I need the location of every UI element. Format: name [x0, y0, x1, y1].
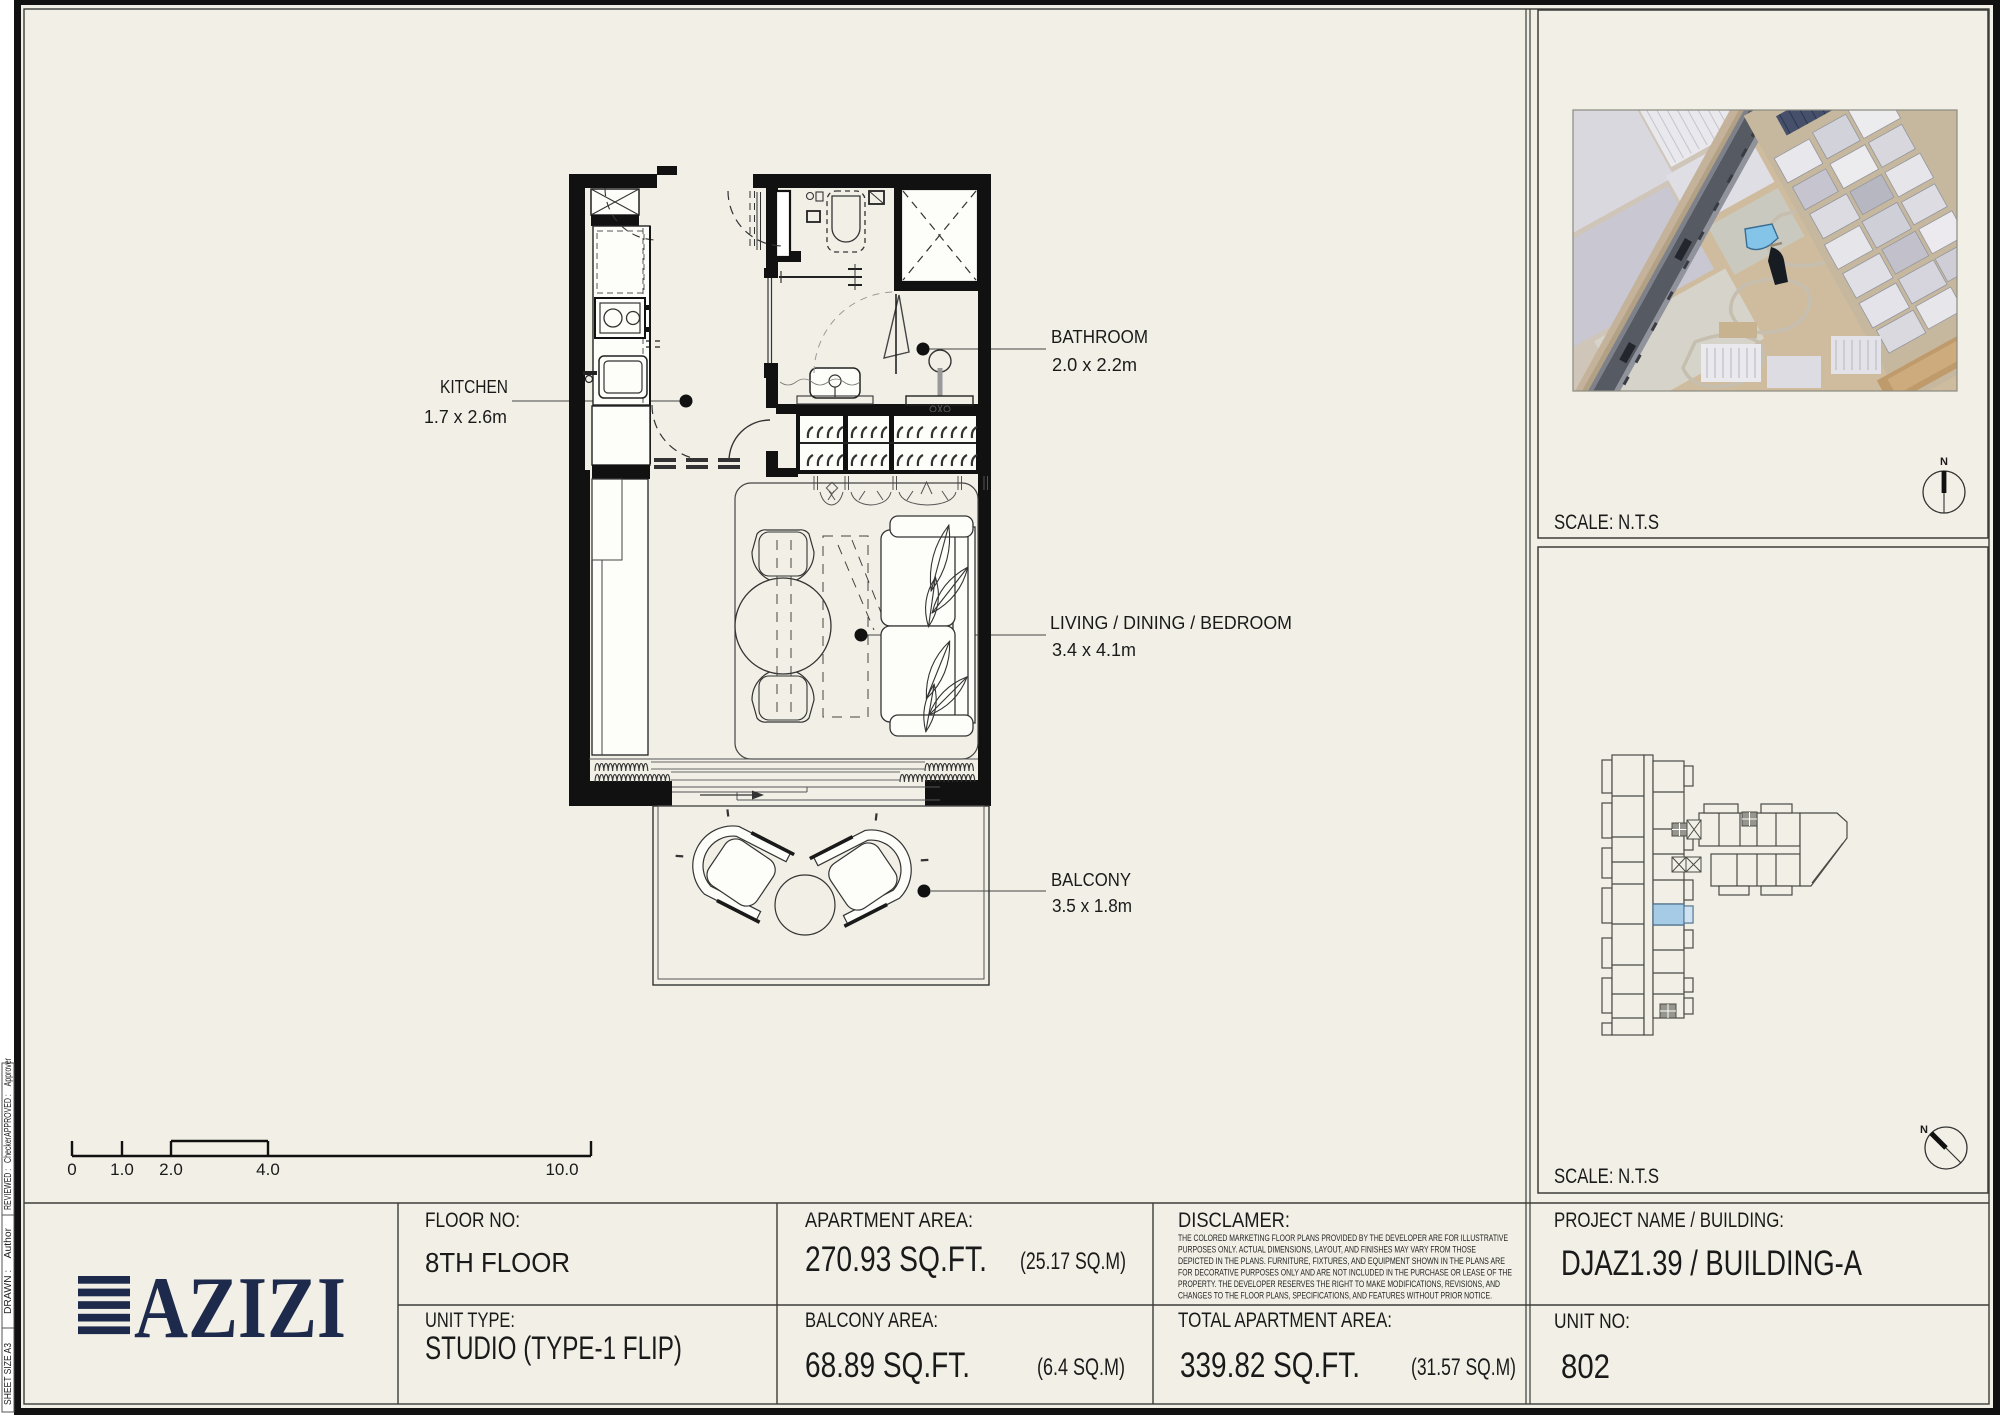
svg-text:2.0 x 2.2m: 2.0 x 2.2m — [1052, 354, 1137, 375]
svg-text:1.7 x 2.6m: 1.7 x 2.6m — [424, 406, 507, 427]
svg-text:BATHROOM: BATHROOM — [1051, 326, 1148, 347]
svg-text:SCALE: N.T.S: SCALE: N.T.S — [1554, 511, 1659, 534]
svg-text:N: N — [1920, 1124, 1928, 1136]
svg-text:AZIZI: AZIZI — [134, 1260, 346, 1357]
svg-text:BALCONY: BALCONY — [1051, 869, 1131, 890]
svg-text:DRAWN : Author: DRAWN : Author — [2, 1228, 14, 1314]
svg-text:STUDIO (TYPE-1 FLIP): STUDIO (TYPE-1 FLIP) — [425, 1330, 682, 1366]
svg-text:REVIEWED : CheckerAPPROVED :: REVIEWED : CheckerAPPROVED : Approver — [3, 1058, 14, 1210]
svg-text:CHANGES TO THE FLOOR PLANS, SP: CHANGES TO THE FLOOR PLANS, SPECIFICATIO… — [1178, 1291, 1492, 1302]
svg-text:PURPOSES ONLY. ACTUAL DIMENSIO: PURPOSES ONLY. ACTUAL DIMENSIONS, LAYOUT… — [1178, 1245, 1476, 1256]
svg-text:3.5 x 1.8m: 3.5 x 1.8m — [1052, 895, 1132, 916]
svg-text:2.0: 2.0 — [159, 1160, 183, 1179]
svg-text:BALCONY AREA:: BALCONY AREA: — [805, 1309, 938, 1332]
svg-text:339.82 SQ.FT.: 339.82 SQ.FT. — [1180, 1346, 1360, 1385]
svg-text:DJAZ1.39 / BUILDING-A: DJAZ1.39 / BUILDING-A — [1561, 1244, 1863, 1283]
svg-text:PROJECT NAME / BUILDING:: PROJECT NAME / BUILDING: — [1554, 1209, 1784, 1232]
svg-text:1.0: 1.0 — [110, 1160, 134, 1179]
svg-text:10.0: 10.0 — [545, 1160, 578, 1179]
svg-text:8TH FLOOR: 8TH FLOOR — [425, 1247, 570, 1278]
svg-text:FOR DECORATIVE PURPOSES ONLY A: FOR DECORATIVE PURPOSES ONLY AND ARE NOT… — [1178, 1268, 1512, 1279]
svg-text:68.89 SQ.FT.: 68.89 SQ.FT. — [805, 1346, 970, 1385]
svg-text:802: 802 — [1561, 1348, 1610, 1386]
svg-text:THE COLORED MARKETING FLOOR PL: THE COLORED MARKETING FLOOR PLANS PROVID… — [1178, 1233, 1508, 1244]
svg-text:UNIT TYPE:: UNIT TYPE: — [425, 1309, 515, 1332]
svg-text:LIVING / DINING / BEDROOM: LIVING / DINING / BEDROOM — [1050, 612, 1292, 633]
svg-text:DEPICTED IN THE PLANS. FURNITU: DEPICTED IN THE PLANS. FURNITURE, FIXTUR… — [1178, 1256, 1505, 1267]
svg-text:(25.17 SQ.M): (25.17 SQ.M) — [1020, 1248, 1126, 1275]
svg-text:3.4 x 4.1m: 3.4 x 4.1m — [1052, 639, 1136, 660]
svg-text:(31.57 SQ.M): (31.57 SQ.M) — [1411, 1354, 1516, 1381]
svg-text:PROPERTY. THE DEVELOPER RESERV: PROPERTY. THE DEVELOPER RESERVES THE RIG… — [1178, 1279, 1500, 1290]
svg-text:UNIT NO:: UNIT NO: — [1554, 1310, 1630, 1333]
svg-text:TOTAL APARTMENT AREA:: TOTAL APARTMENT AREA: — [1178, 1309, 1392, 1332]
svg-text:SCALE: N.T.S: SCALE: N.T.S — [1554, 1165, 1659, 1188]
svg-text:SHEET SIZE A3: SHEET SIZE A3 — [2, 1343, 14, 1405]
svg-text:KITCHEN: KITCHEN — [440, 376, 508, 397]
svg-text:270.93 SQ.FT.: 270.93 SQ.FT. — [805, 1240, 987, 1279]
svg-text:DISCLAMER:: DISCLAMER: — [1178, 1209, 1290, 1232]
svg-text:N: N — [1940, 456, 1948, 468]
svg-text:APARTMENT AREA:: APARTMENT AREA: — [805, 1209, 973, 1232]
svg-text:(6.4 SQ.M): (6.4 SQ.M) — [1037, 1354, 1125, 1381]
svg-text:FLOOR NO:: FLOOR NO: — [425, 1209, 520, 1232]
svg-text:0: 0 — [67, 1160, 76, 1179]
svg-text:4.0: 4.0 — [256, 1160, 280, 1179]
